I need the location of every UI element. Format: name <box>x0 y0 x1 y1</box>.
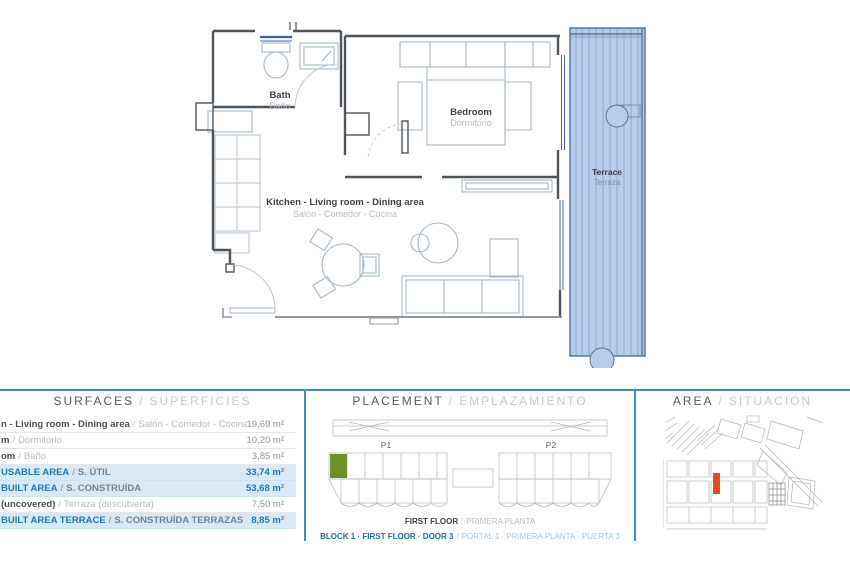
row-label: om/Baño <box>0 451 252 462</box>
floorplan-sheet: { "ui": { "slash": "/" }, "floor_plan": … <box>0 0 850 572</box>
placement-diagram: P1 P2 <box>325 417 615 513</box>
bath-sublabel: Baño <box>269 101 290 111</box>
row-value: 8,85 m² <box>251 515 296 526</box>
table-row-total-built: BUILT AREA/S. CONSTRUÍDA 53,68 m² <box>0 481 296 497</box>
row-value: 3,85 m² <box>252 451 296 462</box>
surfaces-title: SURFACES/SUPERFICIES <box>0 394 305 410</box>
floor-plan: Bath Baño Bedroom Dormitorio Kitchen - L… <box>190 18 660 368</box>
floor-caption: FIRST FLOOR/PRIMERA PLANTA <box>307 517 633 526</box>
surfaces-table: n - Living room - Dining area/Salón - Co… <box>0 417 296 529</box>
table-row-total-terrace: BUILT AREA TERRACE/S. CONSTRUÍDA TERRAZA… <box>0 513 296 529</box>
bedroom-label: Bedroom <box>450 107 492 118</box>
area-title: AREA/SITUACIÓN <box>635 394 850 410</box>
dining-set <box>310 229 379 298</box>
row-label: n - Living room - Dining area/Salón - Co… <box>0 419 247 430</box>
location-marker <box>713 473 720 494</box>
table-row: om/Baño 3,85 m² <box>0 449 296 465</box>
kitchen-label: Kitchen - Living room - Dining area <box>266 197 425 208</box>
row-label: m/Dormitorio <box>0 435 247 446</box>
row-value: 19,69 m² <box>247 419 297 430</box>
portal-p2-label: P2 <box>546 440 557 450</box>
panel-divider <box>634 389 636 541</box>
row-value: 33,74 m² <box>246 467 296 478</box>
band-top-rule <box>0 389 850 391</box>
location-map <box>663 415 823 535</box>
terrace-sublabel: Terraza <box>594 178 621 187</box>
panel-divider <box>304 389 306 541</box>
bath-fixtures <box>208 43 338 132</box>
row-label: BUILT AREA/S. CONSTRUÍDA <box>0 483 246 494</box>
table-row-total-usable: USABLE AREA/S. ÚTIL 33,74 m² <box>0 465 296 481</box>
row-label: (uncovered)/Terraza (descubierta) <box>0 499 252 510</box>
row-label: USABLE AREA/S. ÚTIL <box>0 467 246 478</box>
windows <box>260 37 565 290</box>
portal-p1-label: P1 <box>381 440 392 450</box>
terrace-label: Terrace <box>592 167 622 177</box>
terrace-chair <box>590 348 614 368</box>
map-dense-block <box>769 483 785 505</box>
table-row: n - Living room - Dining area/Salón - Co… <box>0 417 296 433</box>
kitchen-counter <box>215 135 260 253</box>
bed <box>427 67 505 145</box>
unit-caption: BLOCK 1 · FIRST FLOOR · DOOR 3/PORTAL 1 … <box>307 532 633 541</box>
row-value: 7,50 m² <box>252 499 296 510</box>
row-label: BUILT AREA TERRACE/S. CONSTRUÍDA TERRAZA… <box>0 515 251 526</box>
exterior-wall-bottom <box>223 308 562 324</box>
terrace-chair <box>606 105 628 127</box>
placement-title: PLACEMENT/EMPLAZAMIENTO <box>305 394 635 410</box>
terrace-area <box>570 28 645 368</box>
row-value: 53,68 m² <box>246 483 296 494</box>
table-row: (uncovered)/Terraza (descubierta) 7,50 m… <box>0 497 296 513</box>
sofa <box>402 223 523 317</box>
table-row: m/Dormitorio 10,20 m² <box>0 433 296 449</box>
bath-label: Bath <box>269 90 290 101</box>
kitchen-sublabel: Salón - Comedor - Cocina <box>293 209 397 219</box>
row-value: 10,20 m² <box>247 435 297 446</box>
highlighted-unit <box>330 454 347 478</box>
bedroom-sublabel: Dormitorio <box>450 118 492 128</box>
